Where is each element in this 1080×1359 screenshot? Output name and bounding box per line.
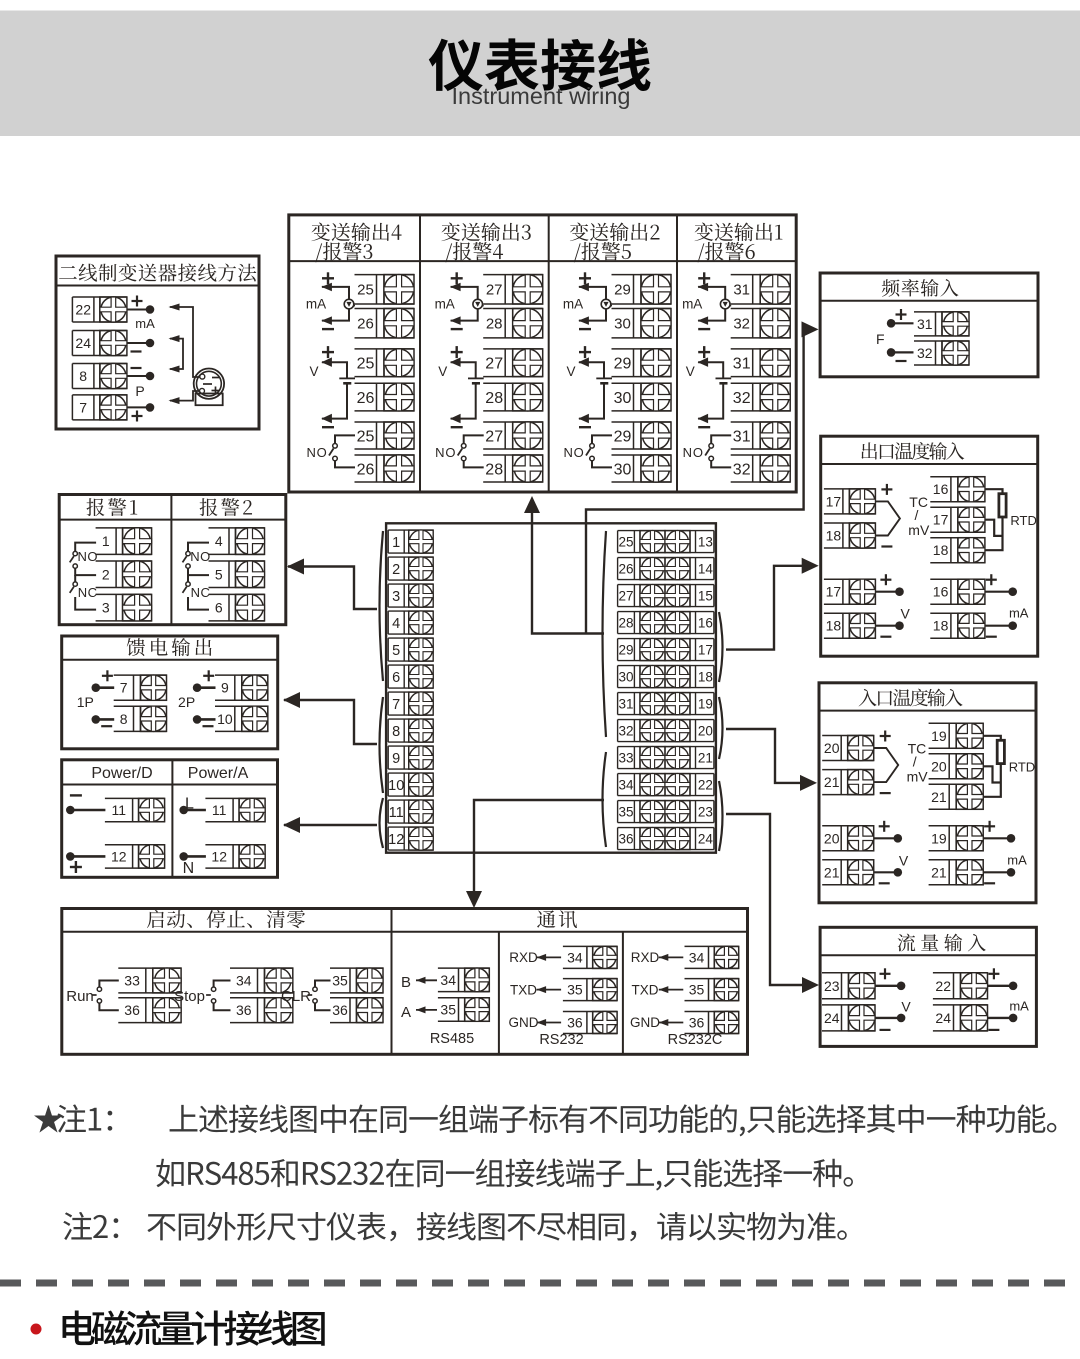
svg-text:mA: mA [435, 297, 455, 312]
svg-text:8: 8 [120, 711, 128, 727]
svg-text:RS485: RS485 [430, 1031, 474, 1047]
svg-text:11: 11 [212, 802, 227, 818]
svg-text:15: 15 [698, 589, 713, 604]
svg-text:27: 27 [485, 356, 503, 373]
svg-text:21: 21 [698, 751, 713, 766]
svg-text:23: 23 [698, 805, 713, 820]
svg-text:Stop: Stop [174, 988, 205, 1005]
svg-text:27: 27 [485, 428, 503, 445]
svg-text:RS232: RS232 [539, 1032, 583, 1048]
svg-text:NO: NO [435, 445, 456, 460]
svg-text:10: 10 [217, 711, 233, 727]
svg-text:N: N [183, 860, 195, 877]
svg-text:17: 17 [933, 512, 949, 528]
svg-text:36: 36 [567, 1015, 583, 1031]
svg-text:Instrument wiring: Instrument wiring [452, 83, 631, 109]
svg-text:34: 34 [567, 949, 583, 965]
svg-text:V: V [899, 852, 909, 868]
svg-text:26: 26 [357, 316, 374, 333]
svg-text:mA: mA [682, 297, 702, 312]
svg-text:11: 11 [389, 805, 404, 821]
svg-text:2: 2 [392, 562, 400, 578]
svg-text:2P: 2P [178, 694, 195, 710]
svg-text:36: 36 [618, 832, 633, 847]
svg-text:12: 12 [388, 832, 404, 848]
svg-text:23: 23 [824, 978, 840, 994]
svg-text:mA: mA [135, 316, 155, 331]
svg-text:28: 28 [485, 461, 503, 478]
svg-text:RTD: RTD [1010, 513, 1036, 528]
svg-text:25: 25 [357, 356, 375, 373]
svg-text:31: 31 [618, 697, 633, 712]
svg-text:NO: NO [306, 445, 327, 460]
svg-text:TC: TC [909, 494, 928, 510]
svg-text:18: 18 [698, 670, 713, 685]
svg-text:31: 31 [733, 356, 751, 373]
svg-text:29: 29 [614, 428, 632, 445]
svg-text:35: 35 [567, 982, 583, 998]
svg-text:20: 20 [698, 724, 713, 739]
svg-text:18: 18 [826, 528, 842, 544]
svg-text:V: V [566, 364, 575, 379]
svg-text:Power/D: Power/D [91, 765, 152, 782]
svg-text:26: 26 [618, 562, 633, 577]
svg-text:NC: NC [191, 585, 211, 600]
svg-text:V: V [686, 364, 695, 379]
svg-text:P: P [135, 383, 144, 399]
svg-text:21: 21 [824, 864, 840, 880]
svg-text:26: 26 [357, 390, 375, 407]
svg-text:20: 20 [824, 740, 840, 756]
svg-text:4: 4 [215, 533, 223, 549]
svg-text:35: 35 [618, 805, 633, 820]
svg-text:22: 22 [698, 778, 713, 793]
svg-text:22: 22 [75, 302, 91, 318]
svg-text:mA: mA [1009, 998, 1029, 1013]
svg-text:27: 27 [486, 282, 503, 299]
svg-text:7: 7 [392, 697, 400, 713]
svg-text:21: 21 [931, 789, 947, 805]
svg-text:34: 34 [440, 972, 456, 988]
svg-text:36: 36 [332, 1002, 348, 1018]
svg-text:28: 28 [618, 616, 633, 631]
svg-text:/: / [915, 507, 919, 523]
svg-text:5: 5 [392, 643, 400, 659]
svg-text:24: 24 [75, 335, 91, 351]
svg-text:8: 8 [79, 368, 87, 384]
svg-text:16: 16 [933, 584, 949, 600]
svg-text:V: V [309, 364, 318, 379]
svg-text:mA: mA [563, 297, 583, 312]
svg-text:36: 36 [689, 1015, 705, 1031]
svg-text:22: 22 [935, 978, 951, 994]
svg-text:25: 25 [618, 535, 633, 550]
svg-text:18: 18 [933, 618, 949, 634]
svg-text:2: 2 [102, 566, 110, 582]
svg-text:32: 32 [917, 345, 933, 361]
svg-text:TC: TC [908, 741, 927, 757]
svg-text:36: 36 [236, 1002, 252, 1018]
svg-text:NO: NO [683, 445, 704, 460]
svg-text:TXD: TXD [632, 982, 659, 997]
svg-text:28: 28 [485, 390, 503, 407]
svg-text:Power/A: Power/A [188, 765, 249, 782]
svg-text:4: 4 [392, 616, 400, 632]
svg-text:3: 3 [392, 589, 400, 605]
svg-text:RTD: RTD [1009, 760, 1035, 775]
svg-text:mA: mA [1009, 606, 1029, 621]
svg-text:17: 17 [698, 643, 713, 658]
svg-text:19: 19 [698, 697, 713, 712]
svg-text:32: 32 [733, 390, 751, 407]
svg-text:31: 31 [917, 316, 933, 332]
svg-text:F: F [876, 331, 885, 347]
svg-text:3: 3 [102, 600, 110, 616]
svg-text:NO: NO [190, 549, 211, 564]
svg-text:7: 7 [79, 399, 87, 415]
svg-text:35: 35 [332, 973, 348, 989]
svg-text:19: 19 [931, 830, 947, 846]
svg-text:32: 32 [733, 316, 750, 333]
svg-text:18: 18 [933, 542, 949, 558]
svg-text:V: V [438, 364, 447, 379]
svg-text:7: 7 [120, 680, 128, 696]
svg-text:RS232C: RS232C [668, 1032, 723, 1048]
svg-text:GND: GND [630, 1015, 660, 1030]
svg-text:Run: Run [66, 988, 94, 1005]
svg-text:17: 17 [826, 584, 842, 600]
svg-text:16: 16 [933, 481, 949, 497]
svg-text:32: 32 [618, 724, 633, 739]
svg-text:A: A [401, 1004, 411, 1021]
svg-text:1: 1 [102, 533, 110, 549]
svg-text:1P: 1P [77, 694, 94, 710]
svg-text:30: 30 [614, 316, 631, 333]
svg-text:1: 1 [392, 535, 400, 551]
svg-text:30: 30 [614, 461, 632, 478]
svg-text:29: 29 [614, 356, 632, 373]
svg-text:NO: NO [563, 445, 584, 460]
svg-text:14: 14 [698, 562, 714, 577]
svg-text:18: 18 [826, 618, 842, 634]
svg-text:9: 9 [392, 751, 400, 767]
svg-text:34: 34 [618, 778, 634, 793]
svg-text:19: 19 [931, 728, 947, 744]
svg-text:26: 26 [357, 461, 375, 478]
svg-text:5: 5 [215, 566, 223, 582]
svg-text:24: 24 [698, 832, 714, 847]
svg-text:30: 30 [614, 390, 632, 407]
svg-text:8: 8 [392, 724, 400, 740]
svg-text:31: 31 [733, 428, 751, 445]
svg-text:34: 34 [236, 973, 252, 989]
svg-text:17: 17 [826, 493, 842, 509]
svg-text:24: 24 [935, 1010, 951, 1026]
svg-text:GND: GND [509, 1015, 539, 1030]
svg-text:20: 20 [931, 758, 947, 774]
svg-text:25: 25 [357, 428, 375, 445]
svg-text:NC: NC [78, 585, 98, 600]
svg-text:12: 12 [211, 849, 227, 865]
svg-text:35: 35 [689, 982, 705, 998]
svg-text:V: V [901, 998, 911, 1014]
svg-text:32: 32 [733, 461, 751, 478]
svg-text:13: 13 [698, 535, 713, 550]
svg-text:RXD: RXD [631, 950, 660, 965]
svg-text:V: V [901, 606, 911, 622]
svg-text:RXD: RXD [509, 950, 538, 965]
svg-text:21: 21 [824, 774, 840, 790]
svg-text:B: B [401, 974, 411, 991]
svg-text:mA: mA [1007, 852, 1027, 867]
svg-text:20: 20 [824, 830, 840, 846]
svg-text:31: 31 [733, 282, 750, 299]
svg-text:CLR: CLR [281, 988, 311, 1005]
svg-text:34: 34 [689, 949, 705, 965]
svg-text:mA: mA [306, 297, 326, 312]
svg-text:/: / [913, 754, 917, 770]
svg-text:10: 10 [388, 778, 404, 794]
svg-text:24: 24 [824, 1010, 840, 1026]
svg-text:29: 29 [614, 282, 631, 299]
svg-text:12: 12 [111, 849, 127, 865]
svg-text:27: 27 [618, 589, 633, 604]
svg-text:29: 29 [618, 643, 633, 658]
svg-text:L: L [185, 795, 194, 812]
svg-text:33: 33 [124, 973, 140, 989]
svg-text:6: 6 [392, 670, 400, 686]
svg-text:mV: mV [907, 769, 929, 785]
svg-text:21: 21 [931, 864, 947, 880]
svg-text:30: 30 [618, 670, 633, 685]
svg-text:16: 16 [698, 616, 713, 631]
svg-text:35: 35 [440, 1002, 456, 1018]
svg-text:NO: NO [77, 549, 98, 564]
svg-text:9: 9 [221, 680, 229, 696]
svg-text:33: 33 [618, 751, 633, 766]
svg-text:25: 25 [357, 282, 374, 299]
svg-text:mV: mV [908, 522, 930, 538]
svg-text:6: 6 [215, 600, 223, 616]
svg-text:11: 11 [112, 802, 127, 818]
svg-text:TXD: TXD [510, 982, 537, 997]
svg-text:28: 28 [486, 316, 503, 333]
svg-text:36: 36 [124, 1002, 140, 1018]
